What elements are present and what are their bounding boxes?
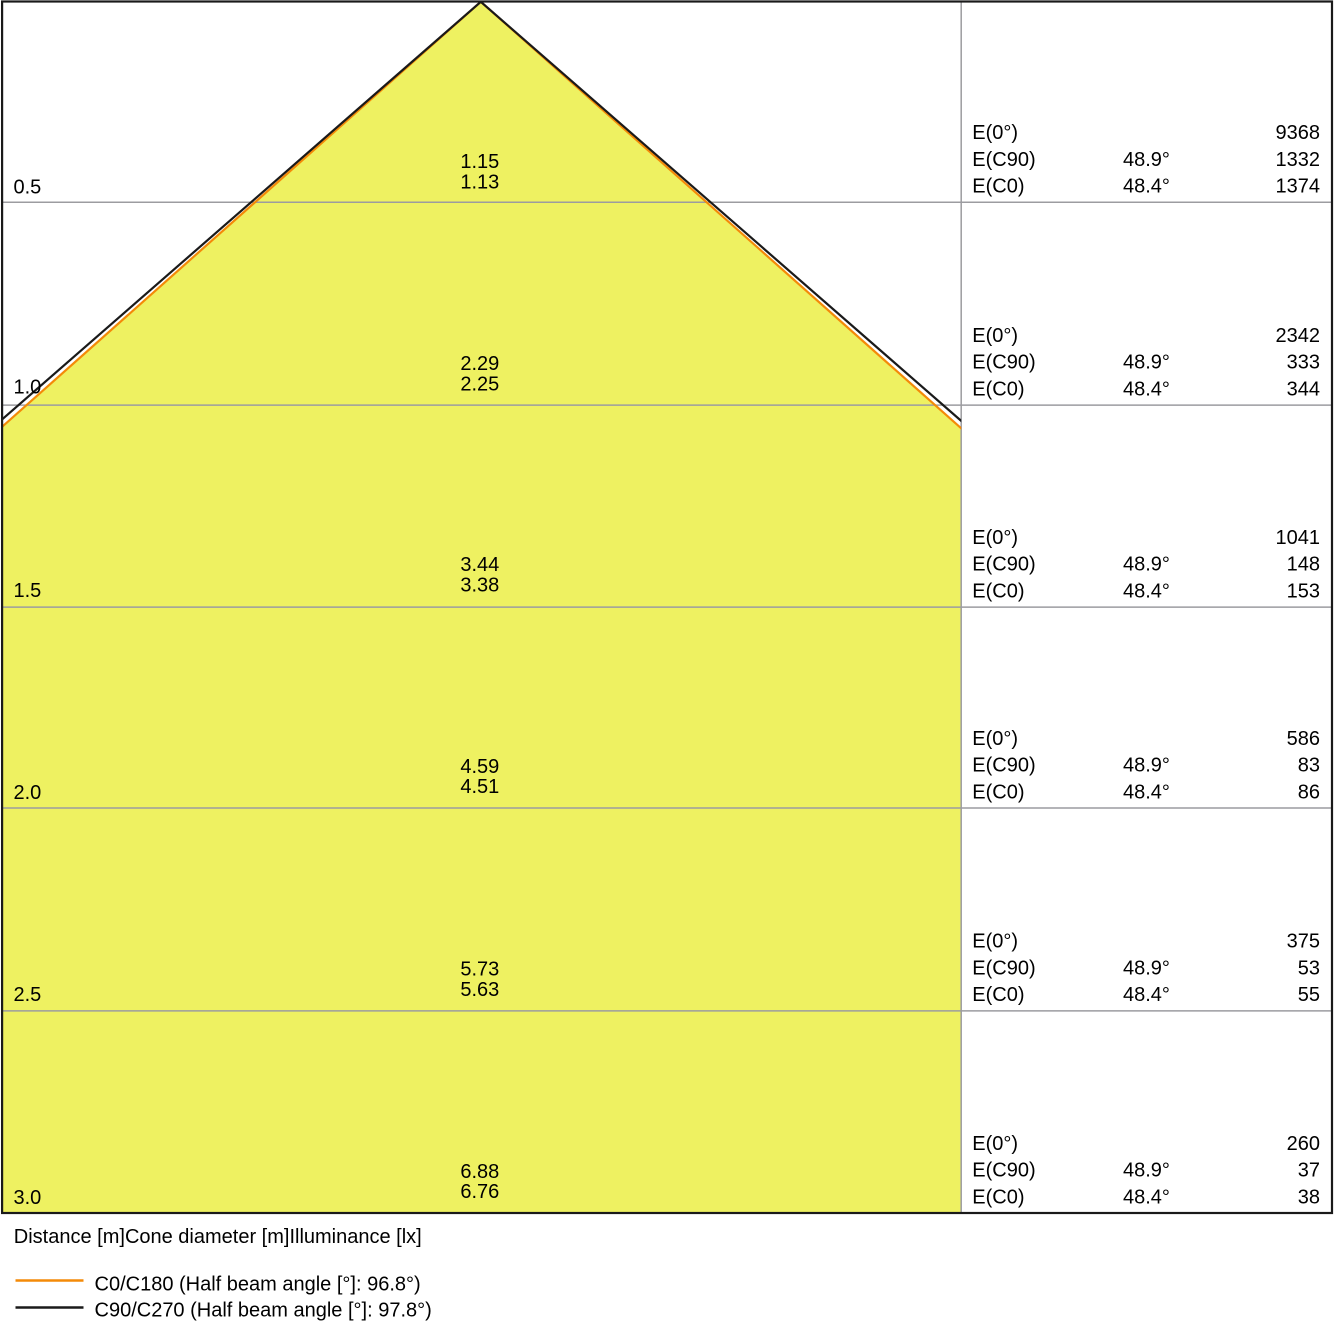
svg-text:260: 260	[1287, 1133, 1320, 1155]
svg-text:48.9°: 48.9°	[1123, 352, 1170, 374]
svg-text:1.0: 1.0	[14, 377, 42, 399]
svg-text:C90/C270 (Half beam angle [°]:: C90/C270 (Half beam angle [°]: 97.8°)	[95, 1300, 432, 1322]
svg-text:3.44: 3.44	[460, 554, 499, 576]
svg-text:148: 148	[1287, 554, 1320, 576]
svg-text:2.29: 2.29	[460, 353, 499, 375]
svg-text:375: 375	[1287, 931, 1320, 953]
svg-text:1374: 1374	[1276, 176, 1321, 198]
svg-text:3.0: 3.0	[14, 1187, 42, 1209]
svg-text:48.9°: 48.9°	[1123, 755, 1170, 777]
svg-text:2342: 2342	[1276, 325, 1321, 347]
svg-text:153: 153	[1287, 580, 1320, 602]
svg-text:E(C0): E(C0)	[972, 781, 1024, 803]
svg-text:1.15: 1.15	[460, 151, 499, 173]
svg-text:2.0: 2.0	[14, 782, 42, 804]
svg-text:Distance [m]Cone diameter [m]I: Distance [m]Cone diameter [m]Illuminance…	[14, 1226, 422, 1248]
svg-text:86: 86	[1298, 781, 1320, 803]
svg-text:48.4°: 48.4°	[1123, 580, 1170, 602]
svg-text:E(C90): E(C90)	[972, 554, 1035, 576]
svg-text:E(C0): E(C0)	[972, 176, 1024, 198]
svg-text:48.4°: 48.4°	[1123, 1186, 1170, 1208]
svg-text:48.4°: 48.4°	[1123, 984, 1170, 1006]
svg-text:333: 333	[1287, 352, 1320, 374]
svg-text:E(0°): E(0°)	[972, 1133, 1018, 1155]
svg-text:1041: 1041	[1276, 527, 1321, 549]
svg-text:E(C90): E(C90)	[972, 1160, 1035, 1182]
svg-text:53: 53	[1298, 958, 1320, 980]
svg-text:1.13: 1.13	[460, 171, 499, 193]
svg-text:E(0°): E(0°)	[972, 527, 1018, 549]
svg-text:55: 55	[1298, 984, 1320, 1006]
svg-text:1332: 1332	[1276, 149, 1321, 171]
svg-text:E(C0): E(C0)	[972, 378, 1024, 400]
svg-text:E(C90): E(C90)	[972, 352, 1035, 374]
svg-text:48.9°: 48.9°	[1123, 149, 1170, 171]
svg-text:6.88: 6.88	[460, 1161, 499, 1183]
svg-text:3.38: 3.38	[460, 574, 499, 596]
svg-text:E(C90): E(C90)	[972, 149, 1035, 171]
svg-text:E(C0): E(C0)	[972, 580, 1024, 602]
svg-text:48.4°: 48.4°	[1123, 378, 1170, 400]
svg-text:E(0°): E(0°)	[972, 122, 1018, 144]
svg-text:5.63: 5.63	[460, 979, 499, 1001]
svg-text:586: 586	[1287, 728, 1320, 750]
svg-text:E(C90): E(C90)	[972, 755, 1035, 777]
svg-text:E(0°): E(0°)	[972, 325, 1018, 347]
svg-text:48.4°: 48.4°	[1123, 781, 1170, 803]
svg-text:37: 37	[1298, 1160, 1320, 1182]
svg-text:48.9°: 48.9°	[1123, 1160, 1170, 1182]
svg-text:48.9°: 48.9°	[1123, 554, 1170, 576]
svg-text:4.51: 4.51	[460, 776, 499, 798]
svg-text:83: 83	[1298, 755, 1320, 777]
svg-text:E(0°): E(0°)	[972, 931, 1018, 953]
svg-text:344: 344	[1287, 378, 1320, 400]
svg-text:E(0°): E(0°)	[972, 728, 1018, 750]
svg-text:1.5: 1.5	[14, 580, 42, 602]
svg-text:5.73: 5.73	[460, 959, 499, 981]
svg-text:2.5: 2.5	[14, 984, 42, 1006]
svg-text:0.5: 0.5	[14, 177, 42, 199]
svg-text:48.9°: 48.9°	[1123, 958, 1170, 980]
svg-text:E(C0): E(C0)	[972, 1186, 1024, 1208]
svg-text:9368: 9368	[1276, 122, 1321, 144]
svg-text:2.25: 2.25	[460, 373, 499, 395]
svg-text:6.76: 6.76	[460, 1181, 499, 1203]
svg-text:48.4°: 48.4°	[1123, 176, 1170, 198]
svg-text:E(C0): E(C0)	[972, 984, 1024, 1006]
svg-text:C0/C180 (Half beam angle [°]:: C0/C180 (Half beam angle [°]: 96.8°)	[95, 1274, 421, 1296]
svg-text:4.59: 4.59	[460, 756, 499, 778]
svg-text:E(C90): E(C90)	[972, 958, 1035, 980]
svg-text:38: 38	[1298, 1186, 1320, 1208]
